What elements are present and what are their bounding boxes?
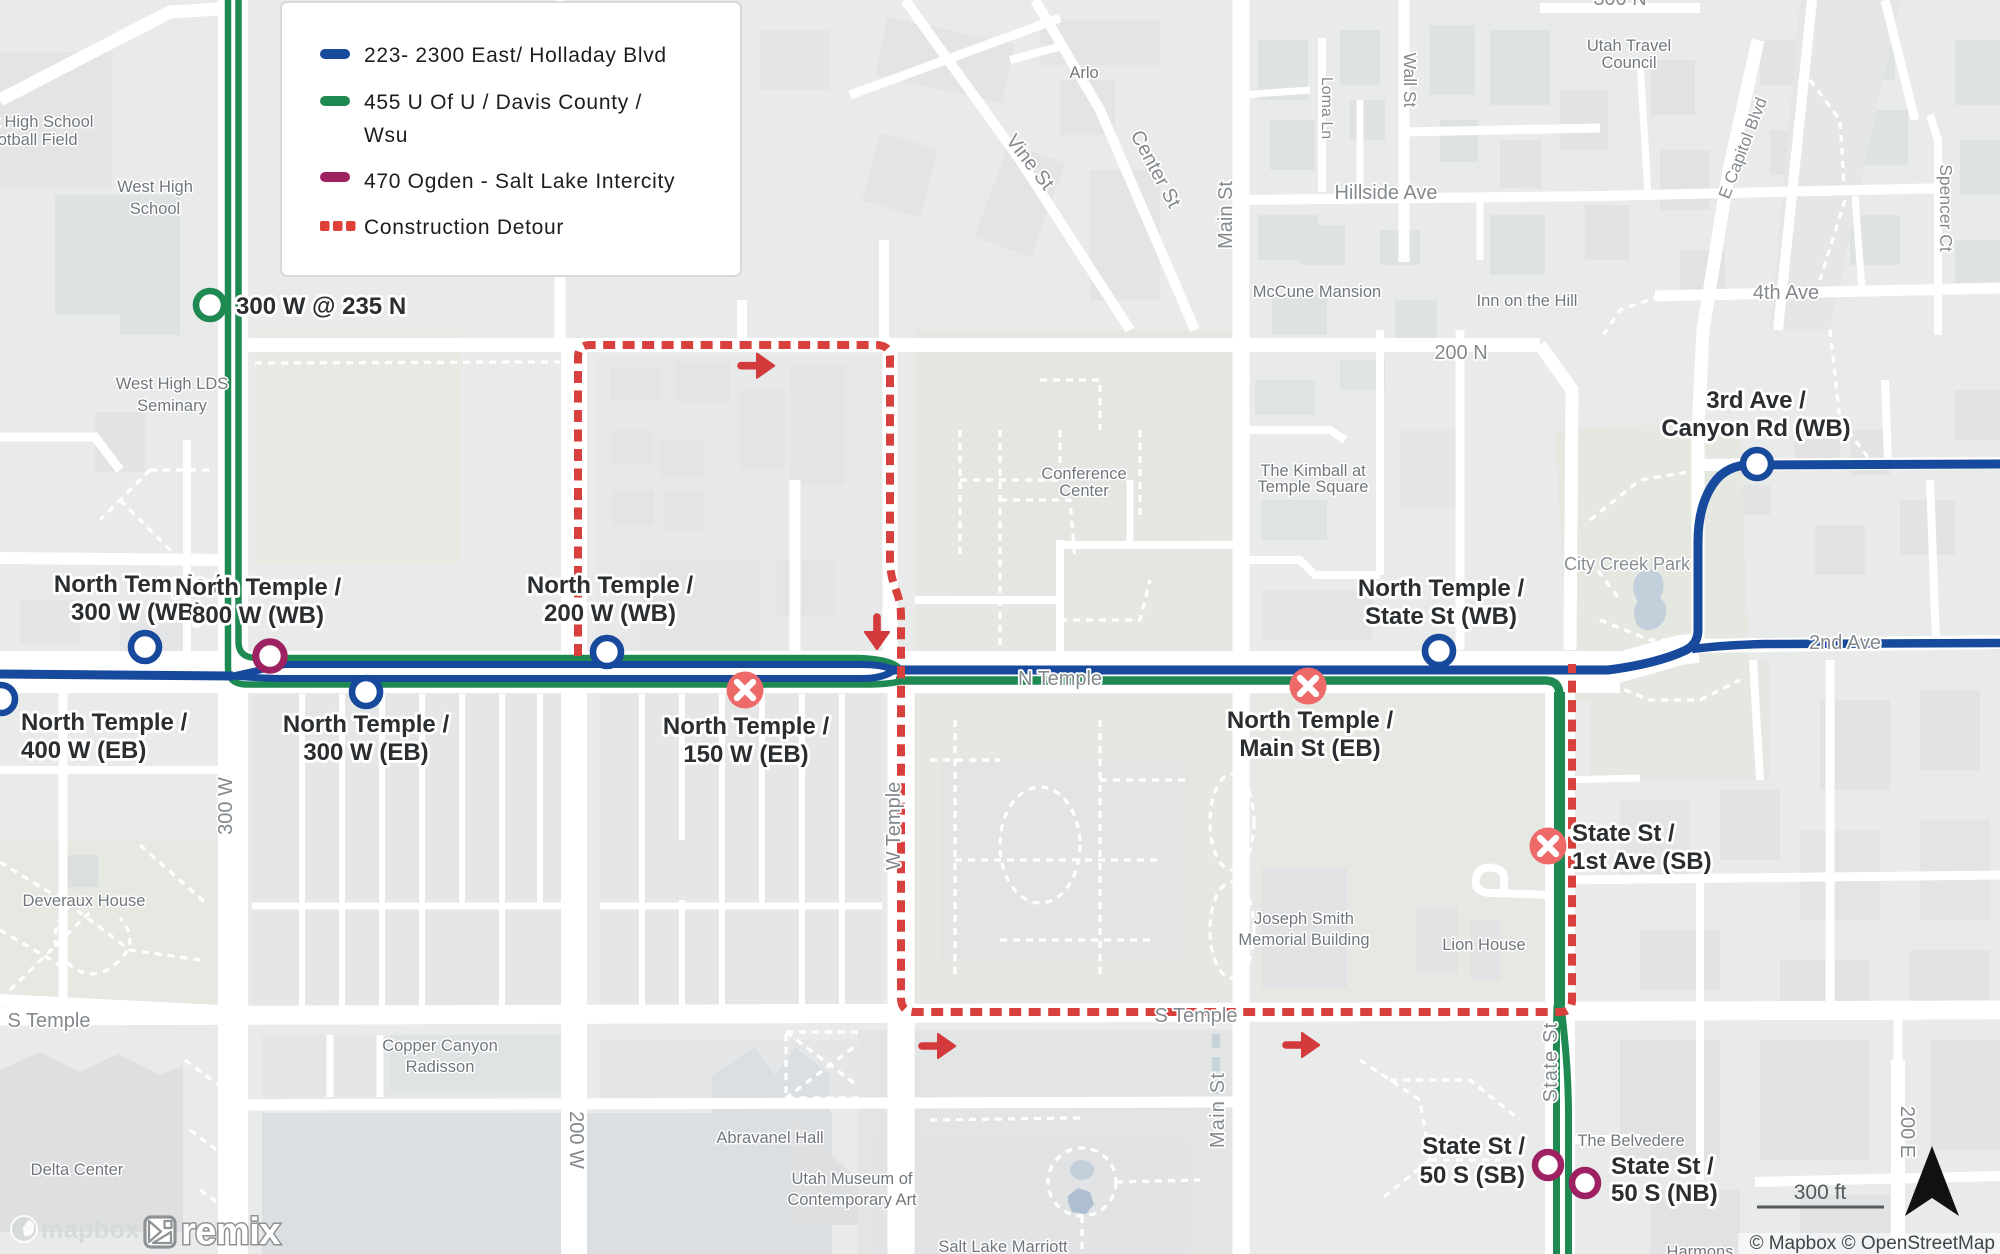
- svg-text:2nd Ave: 2nd Ave: [1809, 632, 1881, 654]
- svg-text:McCune Mansion: McCune Mansion: [1253, 283, 1381, 301]
- svg-text:mapbox: mapbox: [41, 1216, 140, 1244]
- svg-text:Hillside Ave: Hillside Ave: [1334, 182, 1437, 204]
- svg-text:Temple Square: Temple Square: [1258, 478, 1369, 496]
- svg-text:North Temple /: North Temple /: [21, 709, 188, 736]
- svg-text:State St (WB): State St (WB): [1365, 603, 1517, 630]
- svg-text:The Belvedere: The Belvedere: [1577, 1132, 1684, 1150]
- svg-text:N Temple: N Temple: [1018, 668, 1102, 690]
- svg-text:Construction Detour: Construction Detour: [364, 216, 564, 239]
- svg-text:Joseph Smith: Joseph Smith: [1254, 910, 1354, 928]
- svg-text:4th Ave: 4th Ave: [1753, 282, 1819, 304]
- svg-text:Council: Council: [1601, 54, 1656, 72]
- svg-text:400 W (EB): 400 W (EB): [21, 737, 146, 764]
- svg-text:200 W: 200 W: [565, 1111, 587, 1169]
- svg-text:Loma Ln: Loma Ln: [1318, 77, 1335, 139]
- svg-text:Inn on the Hill: Inn on the Hill: [1477, 292, 1578, 310]
- svg-text:50 S (NB): 50 S (NB): [1611, 1180, 1718, 1207]
- svg-text:remix: remix: [181, 1211, 280, 1253]
- svg-text:1st Ave (SB): 1st Ave (SB): [1572, 848, 1712, 875]
- svg-text:Spencer Ct: Spencer Ct: [1936, 164, 1956, 252]
- svg-text:Football Field: Football Field: [0, 131, 78, 149]
- svg-text:State St: State St: [1540, 1022, 1562, 1103]
- svg-text:455 U Of U / Davis County /: 455 U Of U / Davis County /: [364, 91, 642, 114]
- svg-text:50 S (SB): 50 S (SB): [1420, 1162, 1525, 1189]
- svg-text:S Temple: S Temple: [1154, 1005, 1237, 1027]
- svg-text:North Temple /: North Temple /: [175, 574, 342, 601]
- svg-text:3rd Ave /: 3rd Ave /: [1706, 387, 1806, 414]
- svg-text:300 W (WB): 300 W (WB): [71, 599, 203, 626]
- svg-text:State St /: State St /: [1572, 820, 1675, 847]
- svg-text:Harmons: Harmons: [1667, 1243, 1734, 1254]
- svg-text:Memorial Building: Memorial Building: [1238, 931, 1369, 949]
- svg-text:North Temple /: North Temple /: [1227, 707, 1394, 734]
- svg-text:300 ft: 300 ft: [1794, 1181, 1847, 1204]
- svg-text:West High School: West High School: [0, 113, 93, 131]
- svg-text:200 N: 200 N: [1434, 342, 1487, 364]
- svg-text:North Temple /: North Temple /: [283, 711, 450, 738]
- svg-text:© Mapbox © OpenStreetMap: © Mapbox © OpenStreetMap: [1749, 1233, 1995, 1254]
- svg-text:North Temple /: North Temple /: [663, 713, 830, 740]
- svg-text:800 W (WB): 800 W (WB): [192, 602, 324, 629]
- svg-text:State St /: State St /: [1422, 1133, 1525, 1160]
- svg-text:Utah Museum of: Utah Museum of: [791, 1170, 912, 1188]
- svg-text:Seminary: Seminary: [137, 397, 207, 415]
- svg-text:Salt Lake Marriott: Salt Lake Marriott: [938, 1238, 1068, 1254]
- svg-text:West High: West High: [117, 178, 193, 196]
- svg-text:150 W (EB): 150 W (EB): [683, 741, 808, 768]
- svg-text:Utah Travel: Utah Travel: [1587, 37, 1671, 55]
- svg-text:Center: Center: [1059, 482, 1109, 500]
- svg-text:Radisson: Radisson: [406, 1058, 475, 1076]
- svg-text:Copper Canyon: Copper Canyon: [382, 1037, 498, 1055]
- svg-text:North Temple /: North Temple /: [1358, 575, 1525, 602]
- svg-text:North Temple /: North Temple /: [527, 572, 694, 599]
- svg-text:West High LDS: West High LDS: [116, 375, 229, 393]
- svg-text:200 W (WB): 200 W (WB): [544, 600, 676, 627]
- svg-text:City Creek Park: City Creek Park: [1564, 554, 1691, 574]
- svg-text:Canyon Rd (WB): Canyon Rd (WB): [1661, 415, 1850, 442]
- svg-text:223- 2300 East/ Holladay Blvd: 223- 2300 East/ Holladay Blvd: [364, 44, 667, 67]
- svg-text:W Temple: W Temple: [883, 782, 905, 871]
- svg-text:Main St: Main St: [1215, 181, 1237, 249]
- svg-text:Wall St: Wall St: [1400, 53, 1420, 108]
- svg-text:300 W (EB): 300 W (EB): [303, 739, 428, 766]
- svg-text:Arlo: Arlo: [1069, 64, 1098, 82]
- svg-text:200 E: 200 E: [1896, 1106, 1918, 1158]
- svg-text:State St /: State St /: [1611, 1153, 1714, 1180]
- svg-text:Main St: Main St: [1207, 1072, 1229, 1148]
- svg-text:Contemporary Art: Contemporary Art: [787, 1191, 917, 1209]
- svg-text:470 Ogden - Salt Lake Intercit: 470 Ogden - Salt Lake Intercity: [364, 170, 675, 193]
- svg-text:300 W @ 235 N: 300 W @ 235 N: [236, 293, 406, 320]
- svg-text:Wsu: Wsu: [364, 124, 408, 147]
- svg-text:School: School: [130, 200, 180, 218]
- svg-text:Main St (EB): Main St (EB): [1239, 735, 1380, 762]
- svg-text:Conference: Conference: [1041, 465, 1126, 483]
- svg-text:S Temple: S Temple: [7, 1010, 90, 1032]
- svg-text:300 N: 300 N: [1593, 0, 1646, 10]
- svg-text:300 W: 300 W: [215, 777, 237, 835]
- svg-text:Abravanel Hall: Abravanel Hall: [716, 1129, 823, 1147]
- svg-text:Deveraux House: Deveraux House: [23, 892, 146, 910]
- svg-text:Lion House: Lion House: [1442, 936, 1525, 954]
- svg-text:Delta Center: Delta Center: [31, 1161, 124, 1179]
